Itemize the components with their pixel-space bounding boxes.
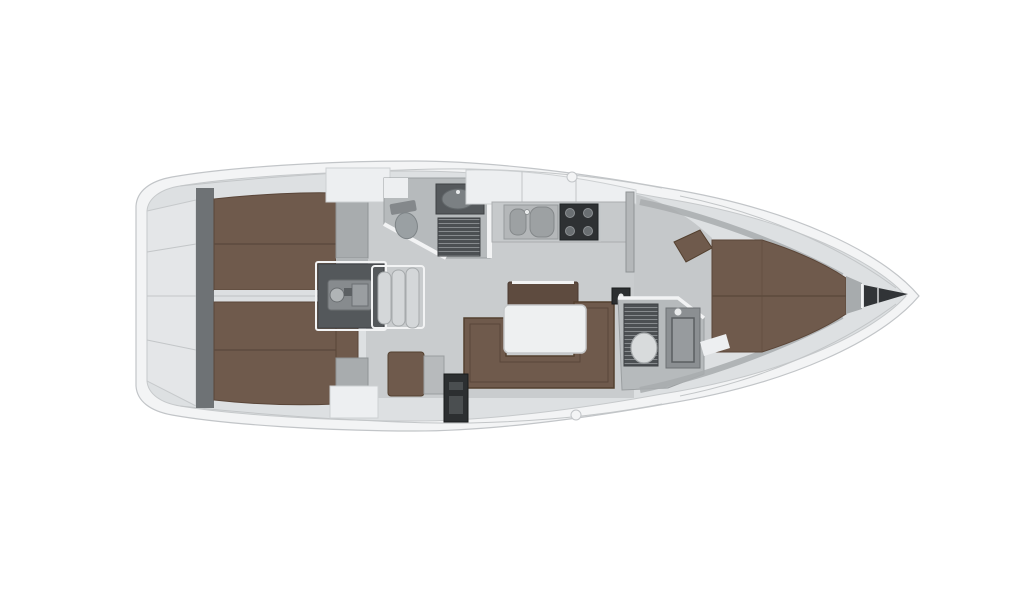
- aft-head-shower-grate: [438, 218, 480, 256]
- aft-locker-top: [326, 168, 390, 202]
- galley-faucet: [525, 210, 530, 215]
- engine-compartment: [316, 262, 386, 330]
- yacht-floorplan-page: [0, 0, 1024, 600]
- step-tread-2: [392, 270, 405, 326]
- nav-desk: [424, 356, 444, 394]
- salon-bench-back: [508, 282, 578, 306]
- forward-shower-glass: [672, 318, 694, 362]
- salon-table: [504, 305, 586, 353]
- stove-burner-4: [584, 227, 593, 236]
- engine-detail: [344, 288, 352, 296]
- stove-burner-1: [566, 209, 575, 218]
- cleat-top: [567, 172, 577, 182]
- aft-head-cabinet: [384, 178, 408, 198]
- stove-burner-3: [566, 227, 575, 236]
- engine-head: [352, 284, 368, 306]
- tall-locker-panel-2: [449, 396, 463, 414]
- aft-locker-bottom: [330, 386, 378, 418]
- tall-locker-panel-1: [449, 382, 463, 390]
- aft-berth-port-foot: [336, 196, 368, 258]
- stove-burner-2: [584, 209, 593, 218]
- yacht-floorplan-diagram: [0, 0, 1024, 600]
- transom-panel: [147, 200, 196, 406]
- galley-stove: [560, 204, 598, 240]
- forward-toilet-bowl: [631, 333, 657, 363]
- galley-sink-right: [530, 207, 554, 237]
- bulkhead-wall: [626, 192, 634, 272]
- aft-head-faucet: [456, 190, 460, 194]
- stern-bulkhead: [196, 188, 214, 408]
- cleat-bottom: [571, 410, 581, 420]
- engine-pulley: [330, 288, 344, 302]
- step-tread-3: [406, 268, 419, 328]
- shower-head: [674, 308, 682, 316]
- stern-lazarette: [147, 188, 214, 408]
- nav-seat: [388, 352, 424, 396]
- companionway-steps: [372, 266, 424, 328]
- step-tread-1: [378, 272, 391, 324]
- salon-bench-trim: [512, 281, 574, 284]
- galley-sink-left: [510, 209, 526, 235]
